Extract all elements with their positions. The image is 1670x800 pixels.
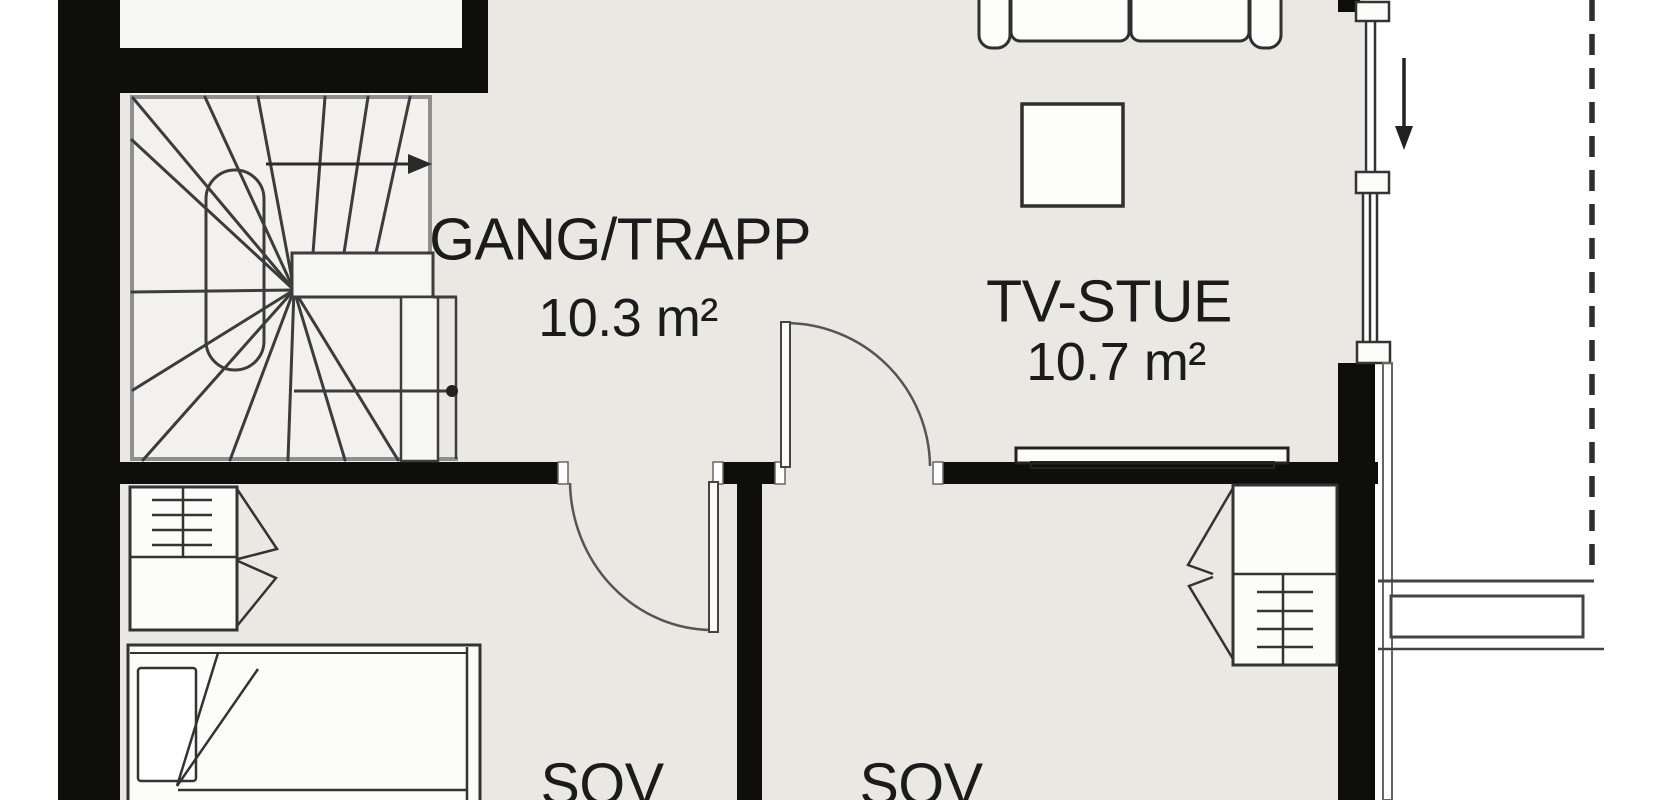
jamb <box>558 462 568 484</box>
sofa-armrest <box>979 0 1010 48</box>
floorplan-drawing <box>0 0 1670 800</box>
stair-landing <box>292 253 433 297</box>
sofa-cushion <box>1011 0 1129 41</box>
floorplan: GANG/TRAPP 10.3 m² TV-STUE 10.7 m² SOV S… <box>0 0 1670 800</box>
balcony-box <box>1391 596 1583 637</box>
jamb <box>933 462 943 484</box>
door-leaf-sov1 <box>709 482 718 632</box>
bed-pillow <box>138 668 196 781</box>
wall-tvstue-south <box>933 462 1378 484</box>
window-frame <box>1357 342 1390 363</box>
wall-top-left <box>120 48 488 93</box>
room-label-gang-trapp: GANG/TRAPP <box>429 211 811 270</box>
stair-balustrade <box>401 297 438 461</box>
upper-room-floor <box>120 0 462 48</box>
wall-left <box>58 0 120 800</box>
window-frame <box>1356 2 1389 21</box>
jamb <box>713 462 723 484</box>
wall-under-stairs <box>58 462 568 484</box>
sofa-cushion <box>1131 0 1249 41</box>
door-leaf-tvstue <box>781 322 790 467</box>
window-frame <box>1356 172 1389 193</box>
room-area-tv-stue: 10.7 m² <box>1026 335 1206 389</box>
entrance-arrow-icon <box>1395 58 1413 150</box>
room-label-sov-1: SOV <box>540 756 663 800</box>
wall-top-stub <box>462 0 488 50</box>
sofa-armrest <box>1250 0 1281 48</box>
bed-sov1 <box>128 645 480 800</box>
room-area-gang-trapp: 10.3 m² <box>538 291 718 345</box>
room-label-sov-2: SOV <box>859 756 982 800</box>
room-label-tv-stue: TV-STUE <box>986 273 1232 332</box>
stair-newel-post <box>446 385 458 397</box>
side-table <box>1022 104 1123 206</box>
exterior <box>1378 0 1604 800</box>
wall-between-bedrooms <box>737 462 762 800</box>
wall-right <box>1338 363 1375 800</box>
